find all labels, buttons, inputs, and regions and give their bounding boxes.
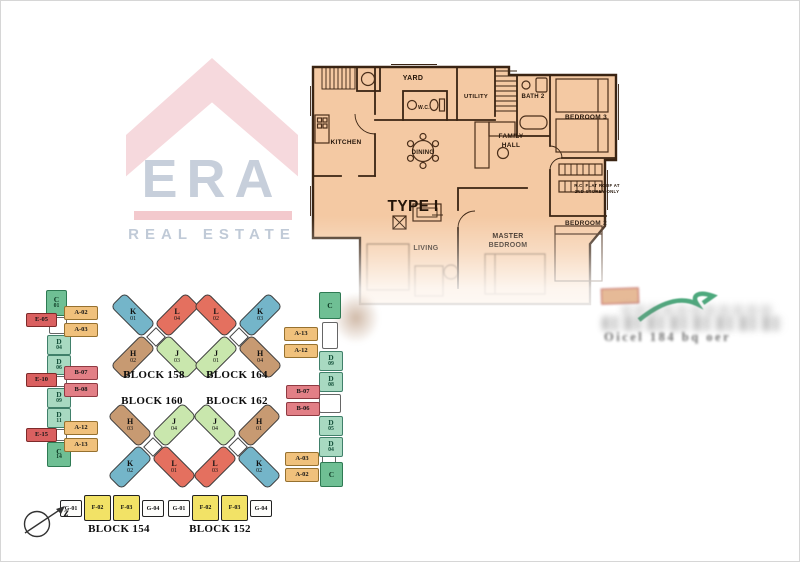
wing-number: 04 [174,316,180,322]
unit-wing: L03 [192,444,237,489]
block-164-label: BLOCK 164 [189,369,285,381]
unit-label: E-15 [35,432,48,439]
roof-note-line2: 2ND STOREY ONLY [575,189,620,194]
unit-f02: F-02 [84,495,111,521]
block-162-cluster: J04 H01 L03 K02 [192,408,282,484]
block-158-cluster: K01 L04 H02 J03 [110,298,200,374]
unit-r-a13: A-13 [284,327,318,341]
block-160-cluster: H03 J04 K02 L01 [107,408,197,484]
unit-label: A-02 [295,472,308,479]
block-154-label: BLOCK 154 [77,523,161,535]
wing-number: 03 [212,468,218,474]
era-logo: ERA REAL ESTATE [118,58,306,250]
unit-label: B-08 [75,387,88,394]
unit-label: E-10 [35,377,48,384]
unit-number: 06 [56,366,62,372]
unit-r-a03: A-03 [285,452,319,466]
wing-number: 02 [130,358,136,364]
unit-r-a02: A-02 [285,468,319,482]
unit-g04: G-04 [250,500,272,517]
wing-number: 01 [130,316,136,322]
wing-number: 01 [256,426,262,432]
unit-g01: G-01 [168,500,190,517]
block-164-cluster: L02 K03 J01 H04 [193,298,283,374]
unit-f03: F-03 [221,495,248,521]
wing-number: 04 [257,358,263,364]
unit-r-d05: D 05 [319,416,343,436]
smudged-watermark: Oicel 184 bq oer [598,286,793,350]
unit-r-b06: B-06 [286,402,320,416]
unit-label: E-05 [35,317,48,324]
unit-label: B-06 [297,406,310,413]
unit-label: A-12 [74,425,87,432]
unit-label: F-02 [92,505,104,511]
unit-junction [322,322,338,349]
unit-label: F-03 [121,505,133,511]
wing-letter: K [257,308,263,316]
unit-r-a12: A-12 [284,344,318,358]
unit-wing: J04 [192,402,237,447]
compass-icon: z [20,497,74,545]
unit-e15: E-15 [26,428,57,442]
era-tagline-text: REAL ESTATE [118,226,306,243]
unit-label: A-13 [74,442,87,449]
unit-number: 01 [54,304,60,310]
unit-label: A-03 [295,456,308,463]
compass-north-label: z [63,505,69,519]
unit-c-top-right: C [319,292,341,319]
unit-number: 09 [56,399,62,405]
unit-wing: L02 [193,292,238,337]
unit-label: A-13 [294,331,307,338]
unit-label: G-01 [173,506,186,512]
unit-wing: H01 [236,402,281,447]
wing-number: 02 [256,468,262,474]
wing-letter: H [256,418,262,426]
type-label: TYPE I [388,198,439,215]
unit-label: B-07 [297,389,310,396]
room-label-bath2: BATH 2 [521,94,544,100]
unit-label: A-03 [74,327,87,334]
unit-a12: A-12 [64,421,98,435]
smudge-band [602,316,784,331]
wing-number: 04 [171,426,177,432]
wing-letter: L [171,460,176,468]
unit-junction [319,394,341,413]
smudge-band [622,305,774,316]
unit-number: 11 [56,419,61,425]
unit-r-d08: D 08 [319,372,343,392]
unit-r-d04: D 04 [319,437,343,457]
unit-f03: F-03 [113,495,140,521]
wing-letter: K [256,460,262,468]
smudge-text: Oicel 184 bq oer [604,330,789,345]
room-label-bedroom3: BEDROOM 3 [565,114,607,121]
unit-a13: A-13 [64,438,98,452]
unit-label: C [329,471,334,479]
unit-r-b07: B-07 [286,385,320,399]
wing-number: 04 [212,426,218,432]
room-label-yard: YARD [403,75,423,82]
room-label-wc: W.C. [418,105,430,111]
wing-letter: J [175,350,179,358]
block-152-label: BLOCK 152 [178,523,262,535]
unit-label: G-04 [255,506,268,512]
room-label-hall: HALL [502,142,521,149]
wing-letter: H [130,350,136,358]
room-label-utility: UTILITY [464,94,488,100]
unit-number: 04 [56,346,62,352]
era-brand-text: ERA [118,152,306,206]
unit-number: 04 [328,448,334,454]
floorplan-drawing: YARD W.C. UTILITY BATH 2 BEDROOM 3 KITCH… [305,58,633,333]
room-label-kitchen: KITCHEN [331,139,362,146]
unit-e10: E-10 [26,373,57,387]
unit-number: 09 [328,362,334,368]
unit-r-d09: D 09 [319,351,343,371]
room-label-family: FAMILY [498,133,523,140]
wing-letter: H [257,350,263,358]
wing-number: 01 [171,468,177,474]
unit-a02: A-02 [64,306,98,320]
wing-letter: J [172,418,176,426]
unit-wing: K01 [110,292,155,337]
wing-letter: L [213,308,218,316]
unit-number: 08 [328,383,334,389]
unit-number: 14 [56,455,62,461]
block-152-row: G-01 F-02 F-03 G-04 [168,495,272,522]
page: ERA REAL ESTATE [0,0,800,562]
wing-letter: H [127,418,133,426]
unit-g04: G-04 [142,500,164,517]
unit-label: F-03 [229,505,241,511]
room-label-dining: DINING [412,150,435,156]
wing-number: 03 [127,426,133,432]
wing-letter: K [130,308,136,316]
wing-letter: J [213,418,217,426]
wing-number: 02 [127,468,133,474]
wing-number: 03 [174,358,180,364]
unit-number: 05 [328,427,334,433]
unit-wing: K02 [107,444,152,489]
wing-letter: K [127,460,133,468]
unit-wing: J04 [151,402,196,447]
unit-label: A-12 [294,348,307,355]
unit-b08: B-08 [64,383,98,397]
unit-label: C [327,302,332,310]
roof-note-line1: R.C. FLAT ROOF AT [574,183,620,188]
unit-wing: K03 [237,292,282,337]
wing-letter: L [174,308,179,316]
unit-wing: H03 [107,402,152,447]
unit-f02: F-02 [192,495,219,521]
wing-number: 03 [257,316,263,322]
era-red-bar [134,211,292,220]
unit-label: F-02 [200,505,212,511]
unit-c-bottom-right: C [320,462,343,487]
unit-a03: A-03 [64,323,98,337]
unit-b07: B-07 [64,366,98,380]
unit-e05: E-05 [26,313,57,327]
wing-number: 01 [213,358,219,364]
unit-label: B-07 [75,370,88,377]
unit-label: A-02 [74,310,87,317]
wing-letter: J [214,350,218,358]
block-158-label: BLOCK 158 [106,369,202,381]
unit-d04: D 04 [47,335,71,355]
unit-label: G-04 [147,506,160,512]
wing-letter: L [212,460,217,468]
block-154-row: G-01 F-02 F-03 G-04 [60,495,164,522]
wing-number: 02 [213,316,219,322]
